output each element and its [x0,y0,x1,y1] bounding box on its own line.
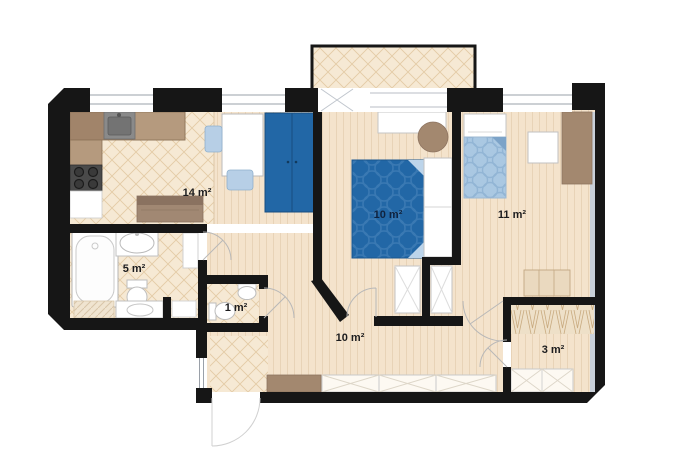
balcony-door-window [318,88,447,112]
label-wc: 1 m² [225,302,248,314]
label-hallway: 10 m² [336,332,365,344]
bath-mat [74,301,114,318]
hallway-floor-sliver [452,265,461,297]
sofa-icon [137,196,203,222]
hall-wardrobe-3 [436,375,496,392]
balcony-floor [312,46,475,90]
floor-plan-canvas: 14 m² 10 m² 11 m² 5 m² 1 m² 10 m² 3 m² [0,0,695,471]
clothes-rail-icon [511,303,594,334]
label-closet: 3 m² [542,344,565,356]
hallway-furniture [267,375,496,392]
built-in-wardrobe-right [431,266,452,313]
bench-icon [267,375,321,392]
entrance-door [212,398,260,446]
label-bathroom: 5 m² [123,263,146,275]
pouf-icon [418,122,448,152]
hall-wardrobe-1 [322,375,379,392]
desk-icon [222,114,263,176]
kitchen-counter-right [133,112,185,140]
window-bedroom-second [503,88,572,112]
bathroom-shelf [172,301,196,317]
built-in-wardrobe-left [395,266,420,313]
wc-basin-icon [238,284,256,300]
tall-wardrobe-blue [265,113,317,212]
kitchen-cabinet [70,191,102,218]
washing-machine-icon [116,301,163,318]
desk-chair-icon [205,126,222,152]
kitchen-side-counter [70,140,102,166]
second-chair-icon [227,170,253,190]
label-bedroom-main: 10 m² [374,209,403,221]
nightstand-icon [528,132,558,163]
floor-plan: 14 m² 10 m² 11 m² 5 m² 1 m² 10 m² 3 m² [0,0,695,471]
single-bed-icon [464,114,506,198]
label-living-kitchen: 14 m² [183,187,212,199]
hall-wardrobe-2 [379,375,436,392]
label-bedroom-second: 11 m² [498,209,526,221]
window-living [222,88,285,112]
bathroom-cabinet [183,233,198,268]
closet-wardrobe [511,369,573,392]
wardrobe-brown-icon [562,112,592,184]
washbasin-icon [116,230,158,256]
entrance-tile-floor [210,336,268,392]
window-entrance-side [196,358,207,388]
window-kitchen [90,88,153,112]
bathtub-icon [72,232,118,307]
dresser-beige-icon [524,270,570,296]
stove-icon [70,165,102,191]
bedroom-closet-column [424,158,452,257]
